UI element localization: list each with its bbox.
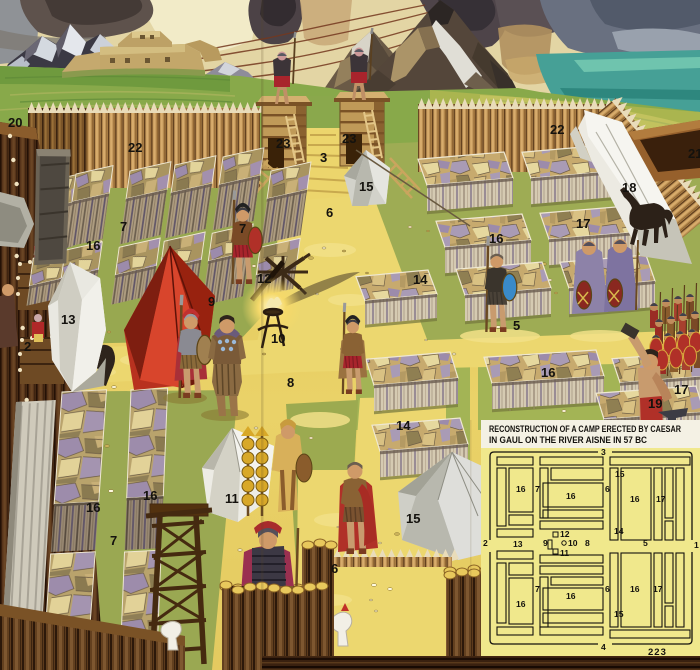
svg-text:16: 16 [516,599,526,609]
svg-text:9: 9 [208,294,215,309]
svg-text:4: 4 [601,642,606,652]
svg-text:12: 12 [257,271,271,286]
svg-text:7: 7 [110,533,117,548]
svg-text:15: 15 [406,511,420,526]
svg-text:16: 16 [516,484,526,494]
svg-text:10: 10 [271,331,285,346]
svg-text:22: 22 [550,122,564,137]
svg-text:13: 13 [513,539,523,549]
svg-text:RECONSTRUCTION OF A CAMP ERECT: RECONSTRUCTION OF A CAMP ERECTED BY CAES… [489,424,681,434]
svg-text:3: 3 [601,447,606,457]
svg-text:6: 6 [605,484,610,494]
svg-text:15: 15 [359,179,373,194]
svg-text:16: 16 [86,238,100,253]
svg-text:8: 8 [287,375,294,390]
svg-text:6: 6 [605,584,610,594]
svg-text:7: 7 [120,219,127,234]
svg-text:18: 18 [622,180,636,195]
svg-text:7: 7 [239,221,246,236]
svg-text:14: 14 [614,526,624,536]
svg-text:15: 15 [615,469,625,479]
svg-text:15: 15 [614,609,624,619]
svg-text:3: 3 [320,150,327,165]
svg-text:17: 17 [674,382,688,397]
svg-text:19: 19 [648,396,662,411]
svg-text:16: 16 [630,584,640,594]
svg-text:11: 11 [560,548,569,558]
svg-text:14: 14 [413,272,428,287]
svg-text:7: 7 [535,484,540,494]
svg-text:17: 17 [653,584,663,594]
svg-text:9: 9 [543,538,548,548]
svg-text:IN GAUL ON THE RIVER AISNE IN: IN GAUL ON THE RIVER AISNE IN 57 BC [489,435,647,445]
svg-text:16: 16 [541,365,555,380]
svg-text:1: 1 [694,540,699,550]
svg-text:22: 22 [128,140,142,155]
svg-text:23: 23 [276,136,290,151]
svg-text:16: 16 [143,488,157,503]
svg-text:17: 17 [576,216,590,231]
svg-text:16: 16 [566,591,576,601]
svg-text:20: 20 [8,115,22,130]
svg-text:2: 2 [24,339,31,354]
svg-text:16: 16 [566,491,576,501]
svg-text:16: 16 [86,500,100,515]
svg-text:16: 16 [630,494,640,504]
svg-text:21: 21 [688,146,700,161]
svg-text:5: 5 [643,538,648,548]
svg-text:8: 8 [585,538,590,548]
svg-text:7: 7 [535,584,540,594]
svg-text:16: 16 [489,231,503,246]
svg-text:23: 23 [342,131,356,146]
svg-text:11: 11 [225,491,239,506]
svg-text:17: 17 [656,494,666,504]
svg-text:5: 5 [513,318,520,333]
svg-text:2: 2 [483,538,488,548]
svg-text:6: 6 [331,561,338,576]
svg-text:6: 6 [326,205,333,220]
svg-text:10: 10 [568,538,578,548]
svg-text:13: 13 [61,312,75,327]
svg-text:14: 14 [396,418,411,433]
